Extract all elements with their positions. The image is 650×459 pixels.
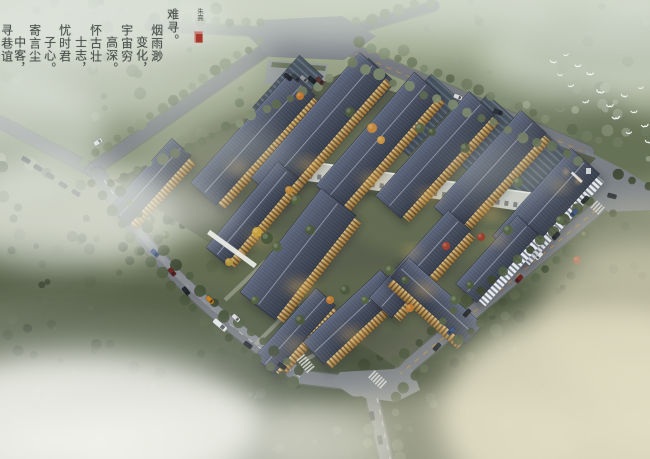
aerial-masterplan-rendering: 难寻。 烟雨渺 变化， 宇宙穷 高深。 怀古壮 士志， 忧时君 子心。 寄言尘 … (0, 0, 650, 459)
scene-canvas (0, 0, 650, 459)
